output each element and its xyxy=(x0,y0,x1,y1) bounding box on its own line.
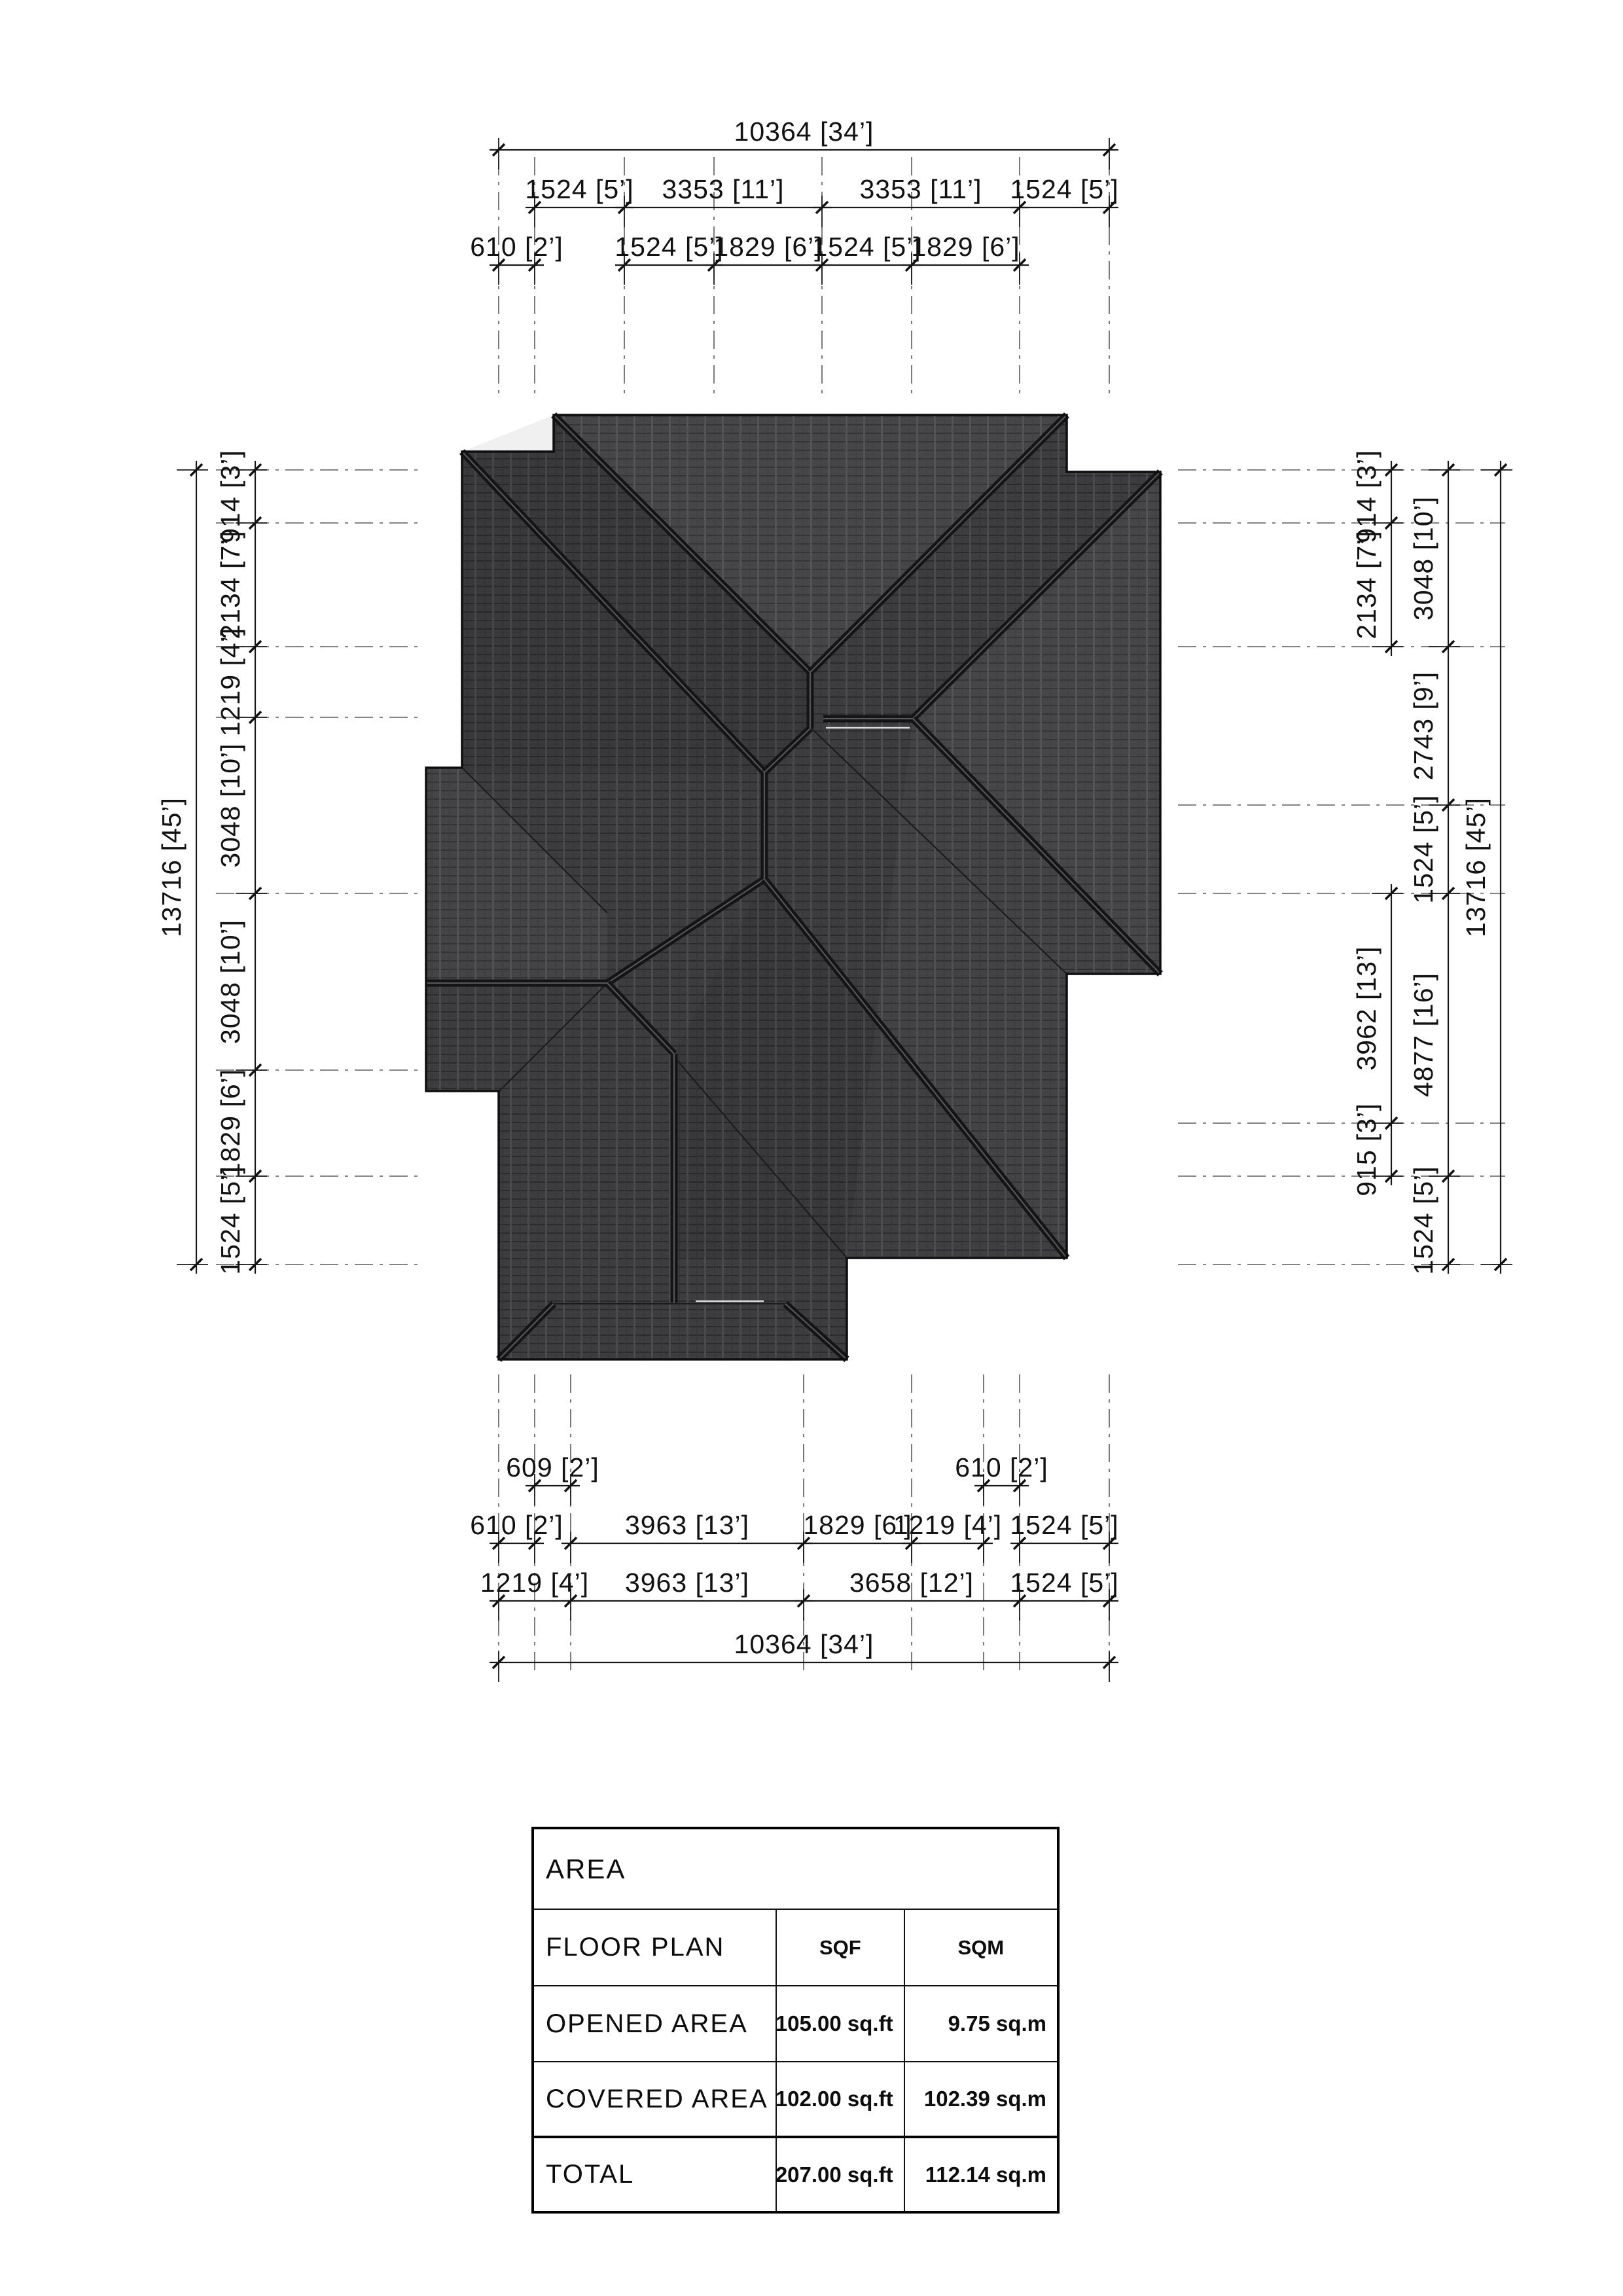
dimension-label: 1219 [4’] xyxy=(215,628,245,736)
dimension-label: 1829 [6’] xyxy=(911,232,1020,262)
dimension-label: 1524 [5’] xyxy=(1408,1166,1438,1274)
dimension-label: 610 [2’] xyxy=(955,1452,1048,1482)
dimension-label: 914 [3’] xyxy=(215,450,245,543)
right-dimension-chains: 914 [3’]2134 [7’]3962 [13’]915 [3’]3048 … xyxy=(1351,450,1512,1274)
dimension-label: 10364 [34’] xyxy=(734,1629,874,1659)
dimension-label: 13716 [45’] xyxy=(156,797,187,937)
dimension-label: 13716 [45’] xyxy=(1461,797,1491,937)
dimension-label: 1524 [5’] xyxy=(525,174,633,204)
dimension-label: 915 [3’] xyxy=(1351,1103,1382,1196)
dimension-label: 1219 [4’] xyxy=(480,1568,589,1598)
area-table-header-row: FLOOR PLAN SQF SQM xyxy=(534,1909,1057,1985)
dimension-label: 10364 [34’] xyxy=(734,117,874,147)
table-row-opened-area: OPENED AREA 105.00 sq.ft 9.75 sq.m xyxy=(534,1985,1057,2061)
dimension-label: 1524 [5’] xyxy=(1408,795,1438,903)
table-row-total: TOTAL 1,207.00 sq.ft 112.14 sq.m xyxy=(534,2136,1057,2211)
dimension-label: 1524 [5’] xyxy=(215,1166,245,1274)
table-row-covered-area: COVERED AREA 1,102.00 sq.ft 102.39 sq.m xyxy=(534,2061,1057,2136)
dimension-label: 3963 [13’] xyxy=(625,1568,749,1598)
row-sqf-value: 105.00 sq.ft xyxy=(776,1986,904,2061)
row-sqm-value: 112.14 sq.m xyxy=(904,2138,1057,2211)
dimension-label: 1524 [5’] xyxy=(812,232,921,262)
dimension-label: 2134 [7’] xyxy=(215,530,245,639)
header-floor-plan: FLOOR PLAN xyxy=(534,1910,776,1985)
row-label: TOTAL xyxy=(534,2138,776,2211)
dimension-label: 1524 [5’] xyxy=(1010,1510,1118,1540)
header-sqm: SQM xyxy=(904,1910,1057,1985)
dimension-label: 1829 [6’] xyxy=(215,1069,245,1177)
dimension-label: 1829 [6’] xyxy=(713,232,822,262)
area-table-title-row: AREA xyxy=(534,1829,1057,1909)
dimension-label: 609 [2’] xyxy=(506,1452,599,1482)
dimension-label: 3048 [10’] xyxy=(1408,496,1438,620)
row-sqm-value: 9.75 sq.m xyxy=(904,1986,1057,2061)
dimension-label: 3353 [11’] xyxy=(859,174,982,204)
dimension-label: 1219 [4’] xyxy=(893,1510,1002,1540)
header-sqf: SQF xyxy=(776,1910,904,1985)
top-dimension-chains: 10364 [34’]1524 [5’]3353 [11’]3353 [11’]… xyxy=(470,117,1118,285)
roof-plan-page: 10364 [34’]1524 [5’]3353 [11’]3353 [11’]… xyxy=(0,0,1623,2296)
bottom-dimension-chains: 609 [2’]610 [2’]610 [2’]3963 [13’]1829 [… xyxy=(470,1452,1118,1682)
dimension-label: 3962 [13’] xyxy=(1351,946,1382,1070)
dimension-label: 610 [2’] xyxy=(470,232,563,262)
left-dimension-chains: 13716 [45’]914 [3’]2134 [7’]1219 [4’]304… xyxy=(156,450,267,1274)
row-sqf-value: 1,102.00 sq.ft xyxy=(776,2062,904,2136)
dimension-label: 3658 [12’] xyxy=(849,1568,974,1598)
dimension-label: 3048 [10’] xyxy=(215,743,245,867)
area-table-title: AREA xyxy=(534,1829,1057,1909)
dimension-label: 914 [3’] xyxy=(1351,450,1382,543)
area-table: AREA FLOOR PLAN SQF SQM OPENED AREA 105.… xyxy=(531,1827,1060,2214)
dimension-label: 1524 [5’] xyxy=(1010,1568,1118,1598)
row-label: COVERED AREA xyxy=(534,2062,776,2136)
row-label: OPENED AREA xyxy=(534,1986,776,2061)
dimension-label: 3048 [10’] xyxy=(215,920,245,1044)
dimension-label: 1524 [5’] xyxy=(615,232,723,262)
roof xyxy=(426,415,1160,1359)
dimension-label: 3353 [11’] xyxy=(662,174,784,204)
dimension-label: 2134 [7’] xyxy=(1351,530,1382,639)
dimension-label: 610 [2’] xyxy=(470,1510,563,1540)
row-sqm-value: 102.39 sq.m xyxy=(904,2062,1057,2136)
dimension-label: 2743 [9’] xyxy=(1408,672,1438,780)
dimension-label: 3963 [13’] xyxy=(625,1510,749,1540)
dimension-label: 4877 [16’] xyxy=(1408,973,1438,1097)
dimension-label: 1524 [5’] xyxy=(1010,174,1118,204)
row-sqf-value: 1,207.00 sq.ft xyxy=(776,2138,904,2211)
